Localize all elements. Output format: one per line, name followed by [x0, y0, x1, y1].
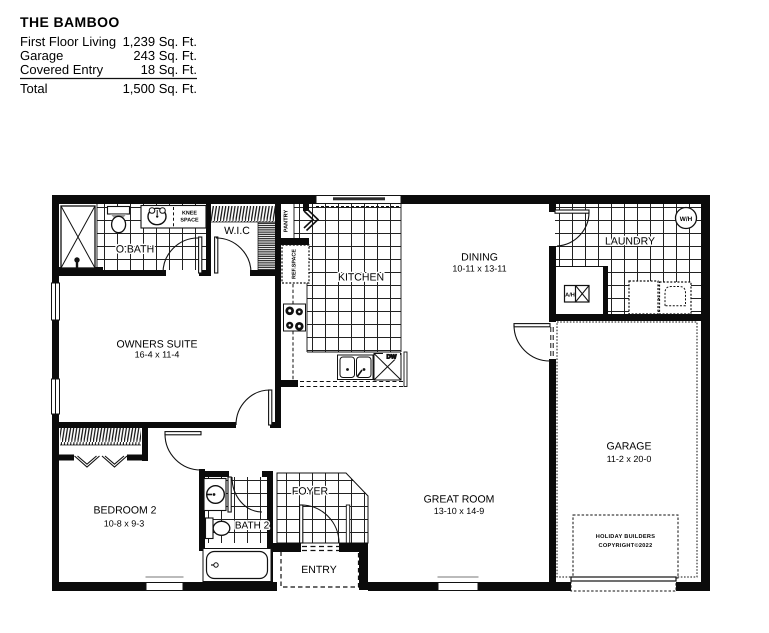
svg-text:THE BAMBOO: THE BAMBOO [20, 14, 120, 30]
svg-text:COPYRIGHT©2022: COPYRIGHT©2022 [598, 543, 652, 549]
svg-text:11-2 x 20-0: 11-2 x 20-0 [607, 454, 652, 464]
svg-text:16-4 x 11-4: 16-4 x 11-4 [135, 350, 180, 360]
svg-text:243 Sq. Ft.: 243 Sq. Ft. [133, 48, 197, 63]
svg-text:ENTRY: ENTRY [301, 564, 336, 576]
svg-text:O.BATH: O.BATH [116, 244, 154, 256]
svg-text:GARAGE: GARAGE [607, 441, 652, 453]
svg-text:Total: Total [20, 81, 48, 96]
svg-text:LAUNDRY: LAUNDRY [605, 236, 655, 248]
svg-text:18 Sq. Ft.: 18 Sq. Ft. [141, 62, 197, 77]
svg-text:KITCHEN: KITCHEN [338, 272, 384, 284]
svg-text:HOLIDAY BUILDERS: HOLIDAY BUILDERS [596, 534, 656, 540]
svg-text:1,500 Sq. Ft.: 1,500 Sq. Ft. [123, 81, 197, 96]
svg-text:13-10 x 14-9: 13-10 x 14-9 [434, 506, 485, 516]
svg-text:10-8 x 9-3: 10-8 x 9-3 [104, 519, 145, 529]
svg-text:Covered Entry: Covered Entry [20, 62, 104, 77]
svg-text:W/H: W/H [680, 216, 693, 223]
svg-text:A/H: A/H [565, 291, 575, 298]
svg-text:10-11 x 13-11: 10-11 x 13-11 [452, 264, 506, 274]
svg-text:BEDROOM 2: BEDROOM 2 [93, 505, 156, 517]
svg-text:DW: DW [387, 354, 397, 361]
svg-text:Garage: Garage [20, 48, 63, 63]
svg-text:First Floor Living: First Floor Living [20, 34, 116, 49]
svg-text:BATH 2: BATH 2 [235, 521, 270, 532]
svg-text:PANTRY: PANTRY [284, 210, 290, 233]
svg-text:GREAT ROOM: GREAT ROOM [424, 494, 495, 506]
svg-text:DINING: DINING [461, 252, 498, 264]
svg-text:REF.SPACE: REF.SPACE [292, 249, 298, 279]
svg-text:FOYER: FOYER [292, 486, 329, 498]
svg-text:KNEE: KNEE [182, 211, 197, 217]
svg-text:SPACE: SPACE [180, 218, 199, 224]
svg-text:W.I.C: W.I.C [224, 225, 250, 237]
svg-text:1,239 Sq. Ft.: 1,239 Sq. Ft. [123, 34, 197, 49]
